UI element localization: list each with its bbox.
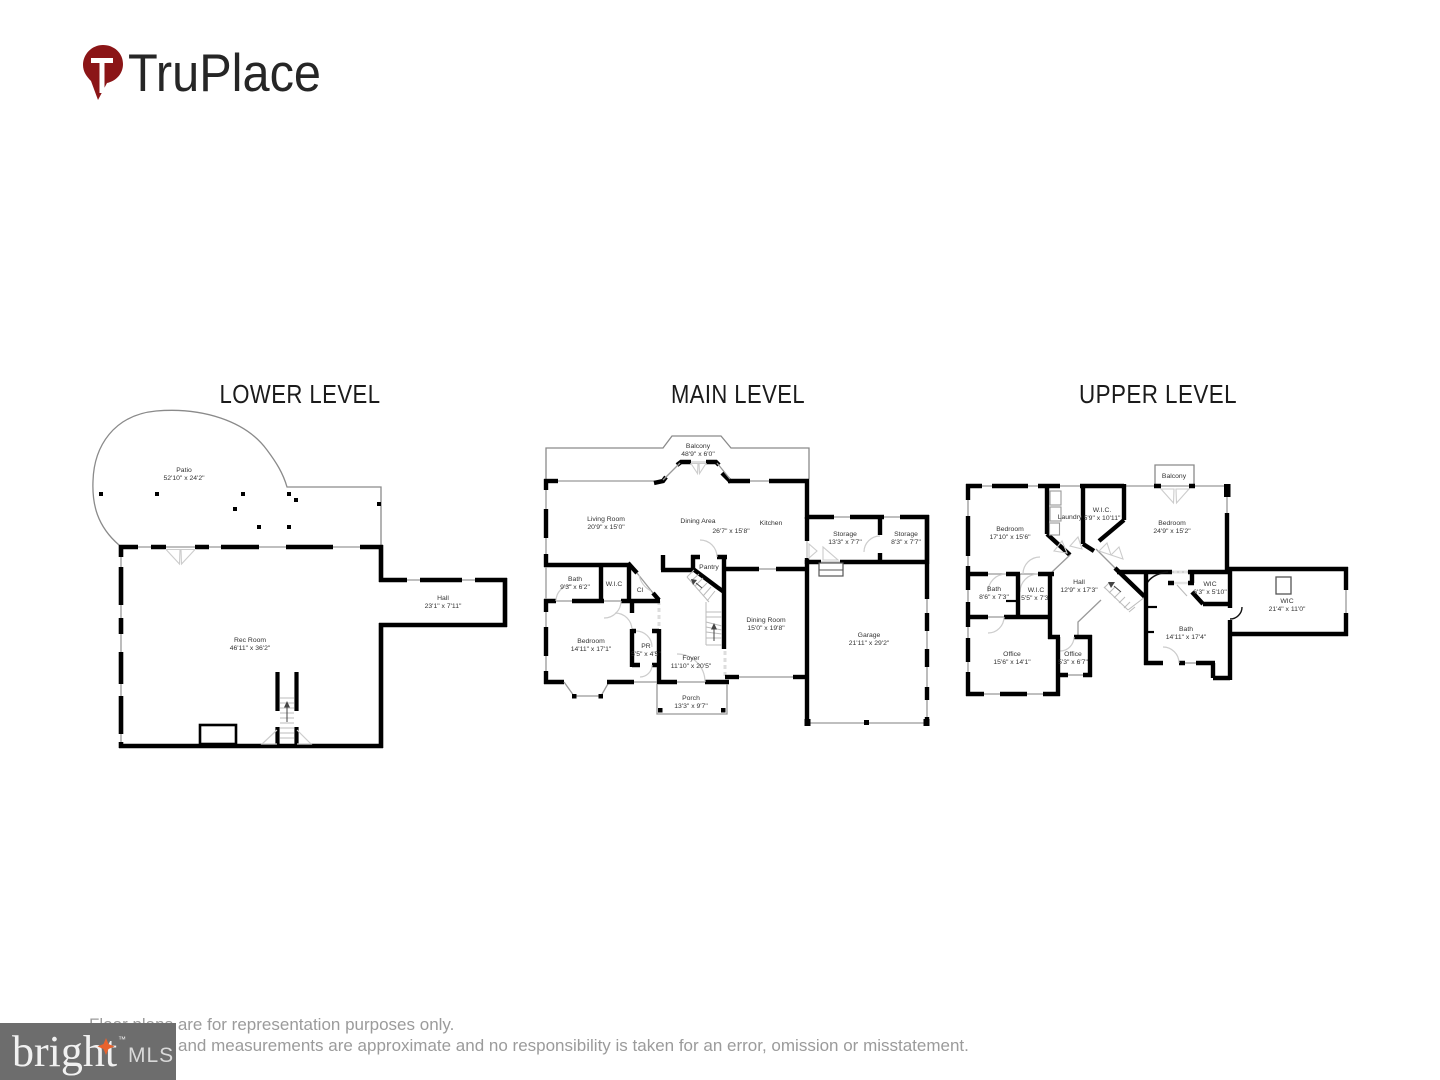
- svg-text:Bedroom: Bedroom: [577, 638, 605, 645]
- svg-text:46'11" x 36'2": 46'11" x 36'2": [230, 645, 271, 652]
- svg-text:Foyer: Foyer: [682, 655, 700, 662]
- svg-text:UPPER LEVEL: UPPER LEVEL: [1079, 381, 1237, 409]
- svg-text:Laundry: Laundry: [1058, 514, 1083, 521]
- svg-text:14'11" x 17'4": 14'11" x 17'4": [1166, 634, 1207, 641]
- svg-text:Rec Room: Rec Room: [234, 637, 266, 644]
- svg-text:8'3" x 7'7": 8'3" x 7'7": [891, 539, 921, 546]
- svg-text:TruPlace: TruPlace: [128, 44, 321, 103]
- svg-text:W.I.C: W.I.C: [606, 581, 623, 588]
- svg-text:W.I.C: W.I.C: [1028, 587, 1045, 594]
- svg-text:48'9" x 6'0": 48'9" x 6'0": [681, 451, 715, 458]
- svg-text:WIC: WIC: [1203, 581, 1216, 588]
- svg-text:9'3" x 6'2": 9'3" x 6'2": [560, 584, 590, 591]
- svg-text:Dining Area: Dining Area: [680, 518, 715, 525]
- svg-text:LOWER LEVEL: LOWER LEVEL: [220, 381, 381, 409]
- svg-text:13'3" x 7'7": 13'3" x 7'7": [828, 539, 862, 546]
- svg-text:26'7" x 15'8": 26'7" x 15'8": [712, 528, 750, 535]
- svg-text:Bath: Bath: [1179, 626, 1193, 633]
- svg-text:21'4" x 11'0": 21'4" x 11'0": [1269, 606, 1306, 613]
- svg-text:Bath: Bath: [987, 586, 1001, 593]
- svg-text:Hall: Hall: [1073, 579, 1085, 586]
- svg-text:bright: bright: [12, 1027, 117, 1076]
- svg-text:Balcony: Balcony: [1162, 473, 1187, 480]
- svg-text:Patio: Patio: [176, 467, 192, 474]
- svg-text:WIC: WIC: [1280, 598, 1293, 605]
- svg-text:MLS: MLS: [128, 1044, 174, 1067]
- svg-text:5'5" x 7'3": 5'5" x 7'3": [1021, 595, 1051, 602]
- svg-text:5'3" x 6'7": 5'3" x 6'7": [1058, 659, 1088, 666]
- svg-text:Pantry: Pantry: [699, 564, 719, 571]
- svg-text:Bedroom: Bedroom: [1158, 520, 1186, 527]
- svg-text:Living Room: Living Room: [587, 516, 625, 523]
- svg-text:12'9" x 17'3": 12'9" x 17'3": [1060, 587, 1098, 594]
- svg-text:Porch: Porch: [682, 695, 700, 702]
- svg-text:PR: PR: [641, 643, 651, 650]
- svg-text:20'9" x 15'0": 20'9" x 15'0": [587, 524, 625, 531]
- svg-text:15'0" x 19'8": 15'0" x 19'8": [747, 625, 785, 632]
- svg-text:Storage: Storage: [894, 531, 918, 538]
- svg-text:24'9" x 15'2": 24'9" x 15'2": [1153, 528, 1191, 535]
- svg-text:™: ™: [118, 1035, 126, 1044]
- svg-text:Bedroom: Bedroom: [996, 526, 1024, 533]
- svg-text:5'5" x 4'5": 5'5" x 4'5": [631, 651, 661, 658]
- svg-text:5'9" x 10'11": 5'9" x 10'11": [1084, 515, 1121, 522]
- svg-text:13'3" x 9'7": 13'3" x 9'7": [674, 703, 708, 710]
- svg-text:6'3" x 5'10": 6'3" x 5'10": [1193, 589, 1227, 596]
- svg-text:W.I.C.: W.I.C.: [1093, 507, 1112, 514]
- svg-text:MAIN LEVEL: MAIN LEVEL: [671, 381, 805, 409]
- svg-text:Cl: Cl: [637, 587, 644, 594]
- svg-text:52'10" x 24'2": 52'10" x 24'2": [163, 475, 205, 482]
- svg-text:Office: Office: [1064, 651, 1082, 658]
- svg-text:17'10" x 15'6": 17'10" x 15'6": [989, 534, 1031, 541]
- svg-text:8'6" x 7'3": 8'6" x 7'3": [979, 594, 1009, 601]
- svg-text:Balcony: Balcony: [686, 443, 711, 450]
- svg-text:Hall: Hall: [437, 595, 449, 602]
- svg-text:Dining Room: Dining Room: [746, 617, 786, 624]
- svg-text:14'11" x 17'1": 14'11" x 17'1": [571, 646, 612, 653]
- svg-text:and measurements are approxima: and measurements are approximate and no …: [178, 1036, 969, 1055]
- svg-text:11'10" x 20'5": 11'10" x 20'5": [671, 663, 712, 670]
- svg-text:Office: Office: [1003, 651, 1021, 658]
- svg-text:15'6" x 14'1": 15'6" x 14'1": [993, 659, 1031, 666]
- svg-text:Bath: Bath: [568, 576, 582, 583]
- svg-text:Garage: Garage: [858, 632, 881, 639]
- svg-text:23'1" x 7'11": 23'1" x 7'11": [425, 603, 462, 610]
- svg-text:Storage: Storage: [833, 531, 857, 538]
- svg-text:21'11" x 29'2": 21'11" x 29'2": [849, 640, 890, 647]
- svg-text:Kitchen: Kitchen: [760, 520, 783, 527]
